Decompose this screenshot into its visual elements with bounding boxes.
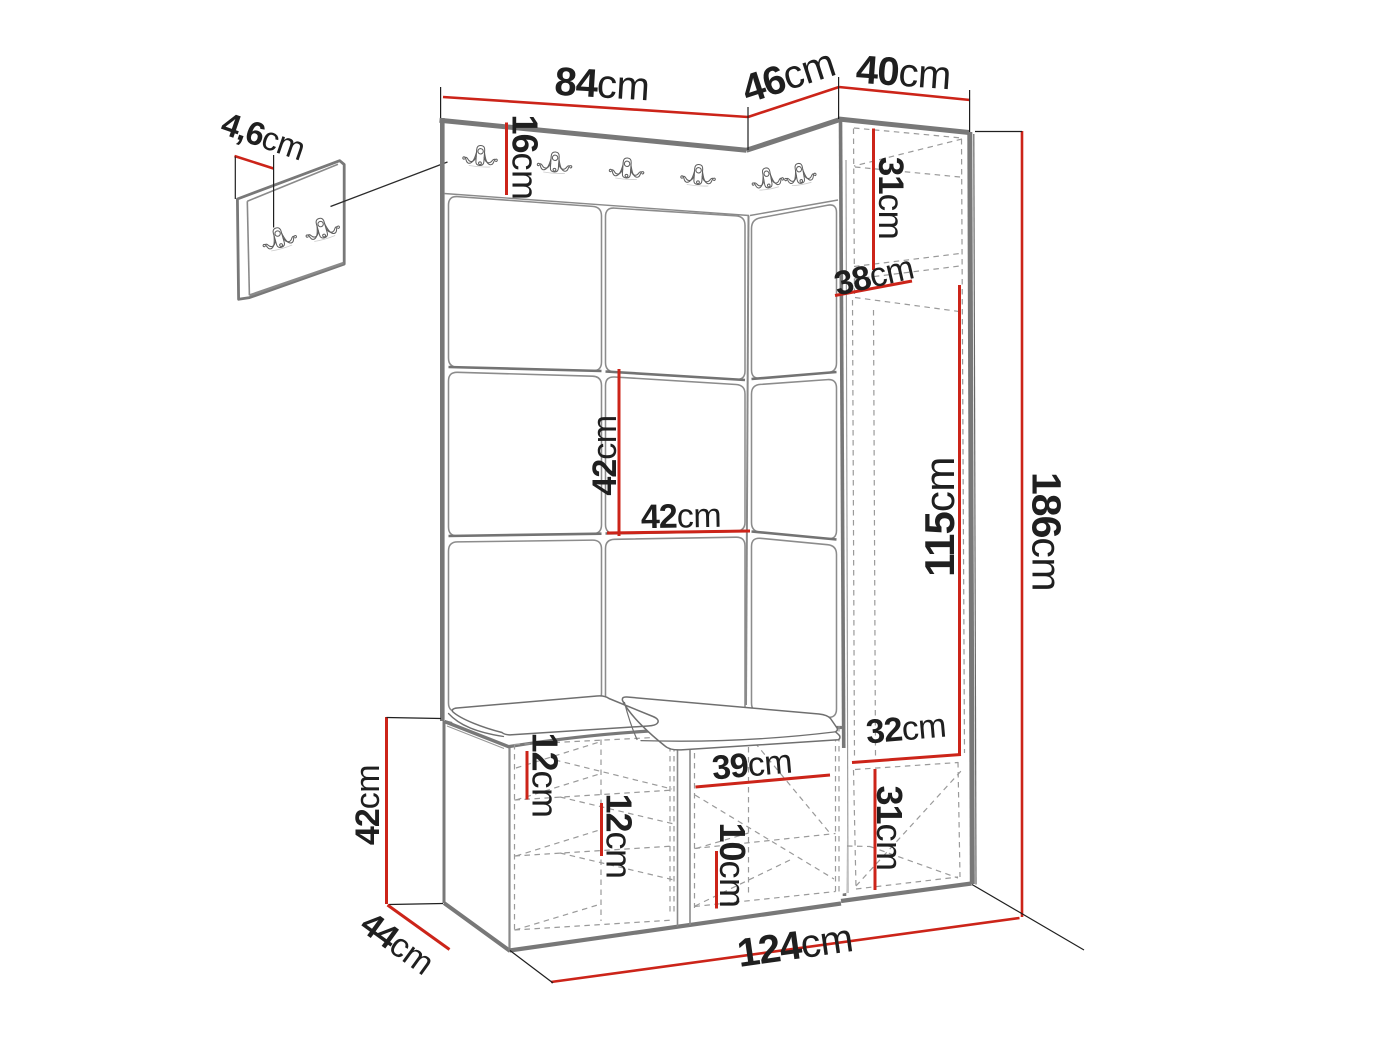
svg-text:42cm: 42cm [641,497,722,536]
svg-text:186cm: 186cm [1024,472,1070,591]
svg-text:10cm: 10cm [713,822,754,907]
svg-text:16cm: 16cm [505,114,546,199]
svg-text:115cm: 115cm [916,457,963,577]
svg-text:84cm: 84cm [553,60,650,110]
svg-text:12cm: 12cm [525,732,566,817]
svg-text:40cm: 40cm [855,48,953,99]
svg-text:32cm: 32cm [864,707,947,752]
svg-text:4,6cm: 4,6cm [217,104,310,167]
svg-text:124cm: 124cm [734,916,855,976]
svg-text:44cm: 44cm [353,905,440,983]
svg-text:31cm: 31cm [872,157,911,240]
svg-text:42cm: 42cm [349,765,387,845]
svg-text:31cm: 31cm [870,785,911,870]
svg-text:42cm: 42cm [586,415,624,495]
svg-text:39cm: 39cm [710,743,793,788]
svg-text:12cm: 12cm [599,793,640,878]
svg-text:46cm: 46cm [737,41,841,112]
